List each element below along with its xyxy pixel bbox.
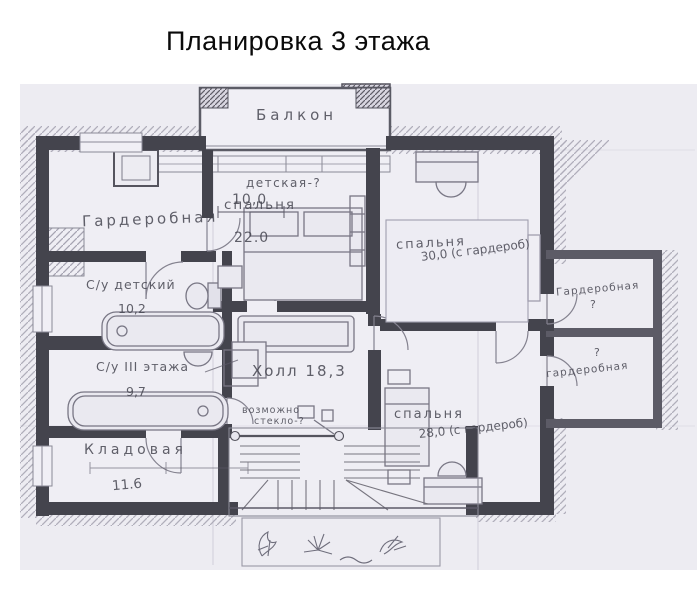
toilet	[186, 283, 221, 309]
label-bath-floor-name: С/у III этажа	[96, 359, 189, 374]
label-hall: Холл 18,3	[252, 362, 347, 380]
label-storage-area: 11.6	[111, 476, 142, 495]
label-wing-lower-mark: ?	[594, 346, 600, 359]
page-title: Планировка 3 этажа	[166, 26, 430, 57]
label-balcony: Балкон	[256, 106, 337, 124]
bed-nursery	[244, 208, 362, 300]
label-bath-kids-area: 10,2	[118, 301, 146, 316]
bathtub-kids	[102, 312, 224, 350]
bathtub-floor	[68, 392, 228, 430]
label-wing-upper-mark: ?	[590, 298, 596, 311]
label-hall-area: 18,3	[305, 362, 346, 380]
balcony-door	[114, 150, 158, 186]
label-nursery-tag: детская-?	[246, 176, 321, 190]
label-glass-note-1: возможно	[242, 405, 300, 416]
nursery-table	[218, 266, 242, 288]
label-glass-note-2: стекло-?	[254, 416, 305, 427]
label-storage-name: Кладовая	[84, 442, 187, 458]
label-nursery-area: 22.0	[234, 230, 269, 246]
floor-plan-drawing	[0, 0, 700, 592]
plant-box	[242, 518, 440, 566]
label-bath-kids-name: С/у детский	[86, 277, 176, 292]
label-nursery-name: спальня	[224, 197, 296, 213]
label-bedroom-br-name: спальня	[394, 407, 464, 422]
label-hall-name: Холл	[252, 362, 299, 380]
label-bath-floor-area: 9,7	[126, 384, 146, 399]
floor-plan-page: Планировка 3 этажа Балкон 10,0 Гардеробн…	[0, 0, 700, 592]
